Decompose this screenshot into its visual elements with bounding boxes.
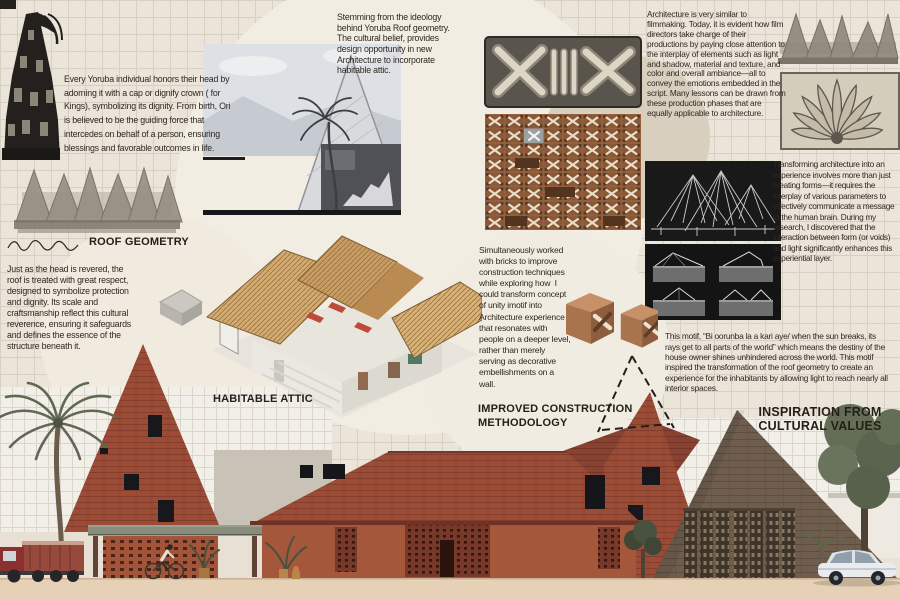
brick-cube-icons bbox=[558, 288, 658, 356]
roof-geometry-sketch bbox=[8, 158, 184, 242]
text-filmmaking: Architecture is very similar to filmmaki… bbox=[647, 10, 787, 118]
carved-motif-sketch bbox=[484, 36, 642, 108]
fan-motif-sketch bbox=[780, 72, 900, 150]
pyramid-screen-panels bbox=[684, 511, 795, 578]
improved-construction-label: IMPROVED CONSTRUCTION METHODOLOGY bbox=[478, 403, 638, 431]
roof-geometry-label: ROOF GEOMETRY bbox=[89, 236, 189, 248]
text-ori-belief: Every Yoruba individual honors their hea… bbox=[64, 73, 236, 156]
text-roof-reverence: Just as the head is revered, the roof is… bbox=[7, 264, 135, 353]
text-experience: Transforming architecture into an experi… bbox=[773, 159, 900, 264]
presentation-board: Every Yoruba individual honors their hea… bbox=[0, 0, 900, 600]
text-attic-ideology: Stemming from the ideology behind Yoruba… bbox=[337, 12, 461, 76]
dump-truck bbox=[0, 541, 84, 583]
text-bricks: Simultaneously worked with bricks to imp… bbox=[479, 245, 571, 390]
light-study-photo bbox=[645, 244, 781, 320]
center-building bbox=[250, 452, 644, 580]
ori-crown-figure bbox=[0, 0, 64, 170]
ground bbox=[0, 578, 900, 600]
inspiration-label: INSPIRATION FROM CULTURAL VALUES bbox=[740, 405, 900, 434]
brick-x-panel-figure bbox=[485, 114, 641, 230]
text-motif: This motif, “Bi oorunba la a kari aye/ w… bbox=[665, 331, 889, 393]
truss-wireframe-photo bbox=[645, 161, 781, 241]
annotation-scribble bbox=[6, 236, 88, 254]
spires-sketch bbox=[776, 6, 900, 66]
attic-axon-figure bbox=[192, 222, 482, 418]
habitable-attic-label: HABITABLE ATTIC bbox=[213, 393, 313, 405]
